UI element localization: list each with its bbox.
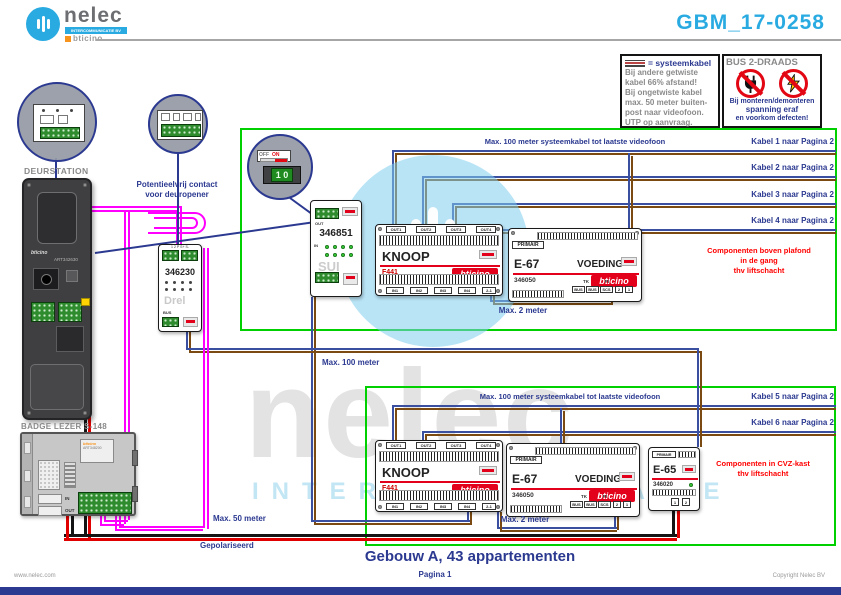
legend-title: = systeemkabel <box>648 58 711 68</box>
in1-terminal: IN1 <box>386 287 404 294</box>
cable-symbol <box>625 60 645 67</box>
drawing-title: Gebouw A, 43 appartementen <box>330 548 610 565</box>
wire-kabel6-blue <box>422 431 836 433</box>
scs-pin: SCS <box>600 286 613 293</box>
wire-max2-bot-brown <box>500 530 617 532</box>
connector-row <box>510 505 562 513</box>
top-zone-note-line: Componenten boven plafond <box>688 246 830 256</box>
header: nelec INTERCOMMUNICATIE BV bticino GBM_1… <box>0 0 841 42</box>
badge-lezer-label: BADGE LEZER S-148 <box>21 422 107 431</box>
out-label: OUT <box>65 508 75 513</box>
module-title: E-67 <box>512 472 537 486</box>
in4-terminal: IN4 <box>458 503 476 510</box>
terminal-strip <box>315 272 339 283</box>
kabel-6-label: Kabel 6 naar Pagina 2 <box>700 418 834 427</box>
wire-max100-horiz-brown <box>314 523 470 525</box>
yellow-jumper <box>81 298 90 306</box>
in1-terminal: IN1 <box>386 503 404 510</box>
module-code: 346230 <box>159 267 201 277</box>
module-knoop-top: OUT1 OUT2 OUT3 OUT4 KNOOP F441 bticino I… <box>375 224 503 296</box>
primair-label: PRIMAIR <box>512 241 544 249</box>
wire-kabel6-riser-blue <box>422 431 424 440</box>
nelec-logo-icon <box>26 7 60 41</box>
wire-max100-horiz-blue <box>311 520 470 522</box>
page-number: Pagina 1 <box>395 570 475 579</box>
module-code: 346851 <box>311 228 361 239</box>
out4-terminal: OUT4 <box>476 226 496 233</box>
address-digits: 1 0 <box>271 168 294 182</box>
module-title: KNOOP <box>382 249 430 264</box>
out4-terminal: OUT4 <box>476 442 496 449</box>
wire-voeding-riser-brown <box>631 156 633 228</box>
pin-2: 2 <box>613 501 621 508</box>
legend-line: Bij ongetwiste kabel <box>625 88 715 98</box>
mini-label <box>619 472 635 481</box>
tk-label: TK <box>581 494 587 499</box>
reader-module: bticino ART348200 <box>80 439 114 463</box>
module-e65: PRIMAIR E-65 346020 1 2 <box>648 447 700 511</box>
terminal-strip <box>161 124 201 137</box>
kabel-2-label: Kabel 2 naar Pagina 2 <box>700 163 834 172</box>
wire-crossrun-brown <box>189 351 700 353</box>
bus-pin: BUS <box>586 286 599 293</box>
in-label: IN <box>314 243 318 248</box>
kabel-5-label: Kabel 5 naar Pagina 2 <box>700 392 834 401</box>
connector-row <box>379 274 499 285</box>
brand-subtitle-bar: INTERCOMMUNICATIE BV <box>65 27 127 34</box>
mini-label <box>479 466 497 475</box>
pin-bus-label: BUS <box>163 310 171 315</box>
wire-voeding2-riser-brown <box>563 411 565 443</box>
out1-terminal: OUT1 <box>386 442 406 449</box>
pin-2: 2 <box>682 498 690 506</box>
in-label: IN <box>65 496 70 501</box>
connector-row <box>678 451 696 458</box>
side-tab <box>132 450 138 466</box>
wire-magenta-badge2-b <box>115 529 203 531</box>
top-max100-bus-label: Max. 100 meter systeemkabel tot laatste … <box>440 137 710 146</box>
in-port <box>38 494 62 504</box>
dip-block <box>343 273 358 285</box>
mini-label <box>479 250 497 259</box>
bottom-plate <box>30 364 84 410</box>
status-icon <box>66 270 78 282</box>
bottom-zone-note-line: thv liftschacht <box>693 469 833 478</box>
wire-kabel5-riser-blue <box>392 405 394 440</box>
pins-top-label: 1 2 P S+ S- <box>159 245 201 249</box>
badge-art-number: ART348200 <box>81 446 113 450</box>
wire-max100-up-blue <box>467 512 469 522</box>
bus-terminal: 2-1 <box>482 287 496 294</box>
bus-warning-line: en voorkom defecten! <box>726 115 818 123</box>
pin-1: 1 <box>623 501 631 508</box>
brand-subtitle: INTERCOMMUNICATIE BV <box>71 28 121 33</box>
bus-pin: BUS <box>570 501 583 508</box>
website-link[interactable]: www.nelec.com <box>14 573 56 579</box>
module-subtitle: VOEDING <box>577 259 623 270</box>
wire-magenta-badge2-a <box>119 526 205 528</box>
module-title: KNOOP <box>382 465 430 480</box>
door-terminal-detail <box>33 104 85 142</box>
side-tab <box>132 486 138 502</box>
switch-setting-callout: OFF ON 1 0 <box>247 134 313 200</box>
connector-recess <box>56 326 84 352</box>
brand-name: nelec <box>64 4 123 28</box>
wire-power-horiz-black <box>64 534 680 537</box>
footer-bar <box>0 587 841 595</box>
connector-row <box>379 490 499 501</box>
wire-power-badge-black <box>71 516 74 534</box>
in4-terminal: IN4 <box>458 287 476 294</box>
module-voeding-top: PRIMAIR E-67 VOEDING 346050 bticino TK P… <box>508 228 642 302</box>
pi-label: PI <box>603 494 607 499</box>
wire-kabel6-brown <box>425 434 836 436</box>
in2-terminal: IN2 <box>410 503 428 510</box>
connector-row <box>379 451 499 462</box>
wire-kabel1-brown <box>395 153 836 155</box>
wire-magenta-top-1 <box>92 206 180 208</box>
door-terminal-block <box>58 302 82 322</box>
connector-row <box>535 447 636 455</box>
wire-max100-vert-brown <box>314 297 316 525</box>
legend-line: Bij andere getwiste <box>625 68 715 78</box>
badge-lezer-unit: bticino ART348200 IN OUT <box>20 432 136 516</box>
out-label: OUT <box>315 221 323 226</box>
logo-bar <box>37 19 40 29</box>
legend-line: UTP op aanvraag. <box>625 118 715 128</box>
door-terminal-callout <box>17 82 97 162</box>
wire-kabel5-blue <box>392 405 836 407</box>
pot-contact-label-line: voor deuropener <box>118 190 236 199</box>
wire-relay-down-blue <box>186 330 188 348</box>
out3-terminal: OUT3 <box>446 442 466 449</box>
top-zone-note-line: thv liftschacht <box>688 266 830 276</box>
kabel-4-label: Kabel 4 naar Pagina 2 <box>700 216 834 225</box>
mini-bticino-label <box>342 207 358 216</box>
kabel-1-label: Kabel 1 naar Pagina 2 <box>700 137 834 146</box>
terminal-strip <box>181 250 198 261</box>
camera-module <box>33 268 59 290</box>
wire-max100-vert-blue <box>311 297 313 522</box>
onoff-switch-detail: OFF ON <box>257 150 291 162</box>
wire-magenta-drop2-a <box>203 248 205 526</box>
bus-box-title: BUS 2-DRAADS <box>726 57 818 68</box>
panel-brand: bticino <box>31 250 47 256</box>
tk-label: TK <box>583 279 589 284</box>
terminal-strip <box>40 127 80 139</box>
header-divider <box>96 39 841 41</box>
max50-label: Max. 50 meter <box>213 514 266 523</box>
relay-terminal-callout <box>148 94 208 154</box>
legend-line: kabel 66% afstand! <box>625 78 715 88</box>
out1-terminal: OUT1 <box>386 226 406 233</box>
connector-row <box>537 232 638 240</box>
legend-line: max. 50 meter buiten- <box>625 98 715 108</box>
wire-power-horiz-red <box>64 538 677 541</box>
pin-1: 1 <box>671 498 679 506</box>
speaker-panel <box>37 192 77 244</box>
bus-pin: BUS <box>584 501 597 508</box>
terminal-strip <box>315 208 339 219</box>
no-plug-icon <box>736 69 765 98</box>
wire-power-badge-red <box>66 516 69 538</box>
scs-pin: SCS <box>598 501 611 508</box>
terminal-strip <box>162 317 179 327</box>
wire-kabel1-blue <box>392 150 836 152</box>
door-terminal-block <box>31 302 55 322</box>
connector-row <box>652 489 696 496</box>
bus-terminal: 2-1 <box>482 503 496 510</box>
dip-block <box>183 317 198 327</box>
bus-warning-line: spanning eraf <box>726 106 818 115</box>
bottom-zone-note-line: Componenten in CVZ-kast <box>693 459 833 468</box>
logo-bar <box>42 16 45 32</box>
top-max2-label: Max. 2 meter <box>468 306 578 315</box>
logo-bar <box>47 19 50 29</box>
relay-terminal-detail <box>157 110 203 140</box>
module-nickname: Drel <box>164 295 185 307</box>
coil <box>64 462 76 488</box>
legend-line: post naar videofoon. <box>625 108 715 118</box>
wire-kabel5-riser-brown <box>395 408 397 440</box>
bottom-max100-bus-label: Max. 100 meter systeemkabel tot laatste … <box>430 392 710 401</box>
module-title: E-65 <box>653 464 676 476</box>
wire-max2-bot-blue <box>497 527 617 529</box>
wire-voeding-riser-blue <box>628 153 630 228</box>
bus-2-draads-box: BUS 2-DRAADS Bij monteren/demonteren spa… <box>722 54 822 128</box>
pot-contact-label-line: Potentieelvrij contact <box>118 180 236 189</box>
pi-label: PI <box>605 279 609 284</box>
partner-logo-square <box>65 36 71 42</box>
mini-label <box>621 257 637 266</box>
doc-number: GBM_17-0258 <box>676 11 825 35</box>
module-title: E-67 <box>514 257 539 271</box>
wire-magenta-drop2-b <box>207 248 209 529</box>
module-code: 346050 <box>512 492 534 499</box>
out2-terminal: OUT2 <box>416 226 436 233</box>
terminal-strip <box>162 250 179 261</box>
bus-pin: BUS <box>572 286 585 293</box>
connector-row <box>512 290 564 298</box>
kabel-3-label: Kabel 3 naar Pagina 2 <box>700 190 834 199</box>
address-display: 1 0 <box>263 166 301 184</box>
module-knoop-bottom: OUT1 OUT2 OUT3 OUT4 KNOOP F441 bticino I… <box>375 440 503 512</box>
gepolariseerd-label: Gepolariseerd <box>200 541 254 550</box>
panel-art-number: ART342630 <box>54 257 78 262</box>
deurstation-label: DEURSTATION <box>24 166 89 176</box>
wire-magenta-loop-inner <box>154 217 198 229</box>
module-code: 346020 <box>653 482 673 488</box>
wire-power-e65-black <box>672 511 675 534</box>
top-zone-note-line: in de gang <box>688 256 830 266</box>
primair-label: PRIMAIR <box>510 456 542 464</box>
primair-label: PRIMAIR <box>652 451 676 458</box>
out-port <box>38 506 62 516</box>
module-voeding-bottom: PRIMAIR E-67 VOEDING 346050 bticino TK P… <box>506 443 640 517</box>
wire-power-e65-red <box>677 511 680 538</box>
deurstation-panel: bticino ART342630 <box>22 178 92 420</box>
in2-terminal: IN2 <box>410 287 428 294</box>
pin-1: 1 <box>625 286 633 293</box>
copyright-text: Copyright Nelec BV <box>773 573 825 579</box>
switch-slider <box>260 158 288 162</box>
diagram-page: { "header": { "brand": "nelec", "brand_s… <box>0 0 841 595</box>
connector-row <box>379 235 499 246</box>
pin-2: 2 <box>615 286 623 293</box>
badge-terminal-strip <box>78 492 132 514</box>
wire-kabel5-brown <box>395 408 836 410</box>
in3-terminal: IN3 <box>434 287 452 294</box>
bottom-max2-label: Max. 2 meter <box>470 515 580 524</box>
out3-terminal: OUT3 <box>446 226 466 233</box>
in3-terminal: IN3 <box>434 503 452 510</box>
max100-drop-label: Max. 100 meter <box>322 358 379 367</box>
wire-crossrun-blue <box>186 348 697 350</box>
module-346851: OUT 346851 IN SUI <box>310 200 362 297</box>
out2-terminal: OUT2 <box>416 442 436 449</box>
no-voltage-icon <box>779 69 808 98</box>
module-346230: 1 2 P S+ S- 346230 Drel BUS <box>158 244 202 332</box>
module-code: 346050 <box>514 277 536 284</box>
systeemkabel-legend-box: = systeemkabel Bij andere getwiste kabel… <box>620 54 720 128</box>
module-subtitle: VOEDING <box>575 474 621 485</box>
wire-voeding2-riser-blue <box>560 408 562 443</box>
dot-matrix <box>38 460 60 490</box>
